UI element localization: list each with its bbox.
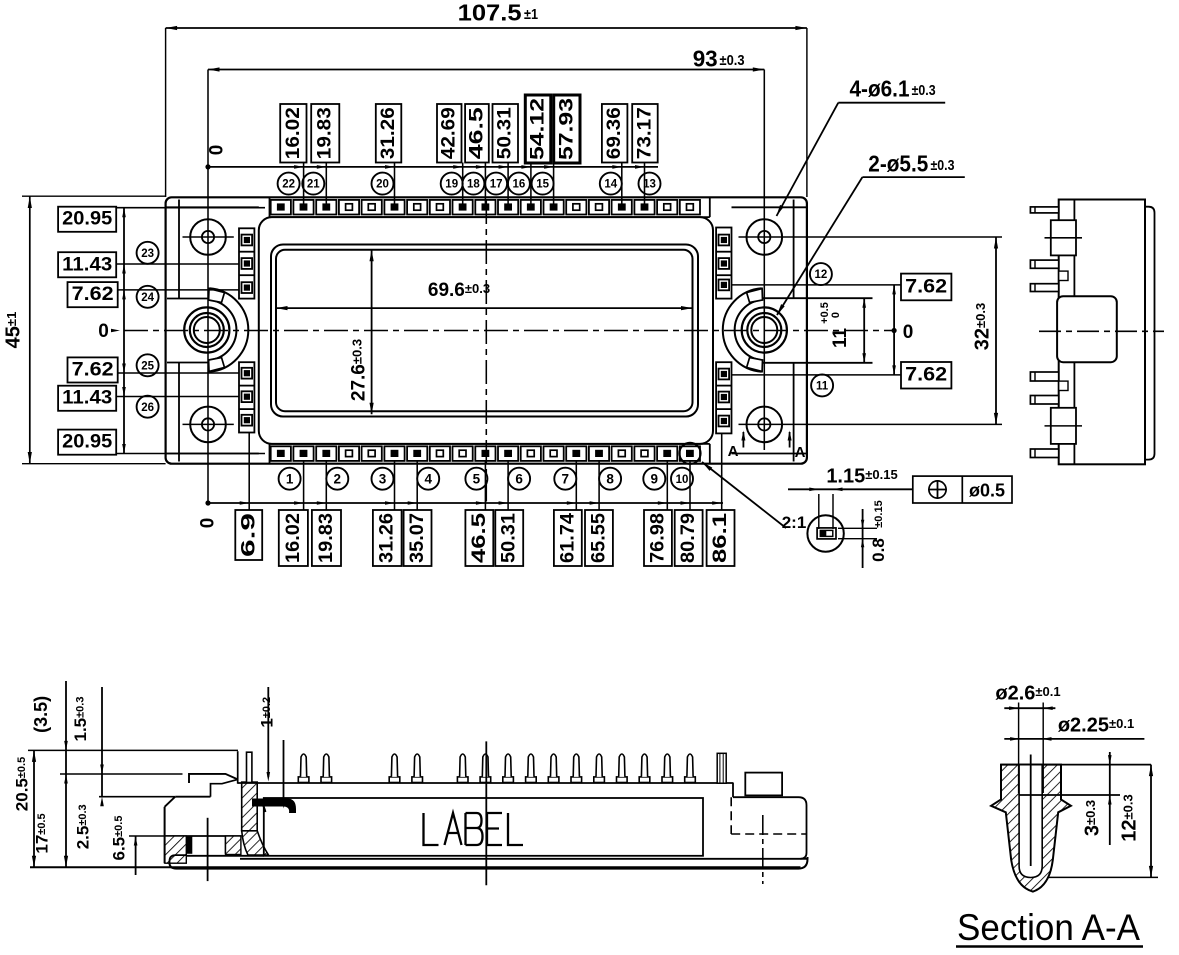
svg-text:4: 4 [424, 472, 432, 487]
svg-text:±0.3: ±0.3 [931, 157, 955, 174]
svg-text:±0.3: ±0.3 [912, 82, 936, 99]
svg-text:2: 2 [334, 472, 342, 487]
svg-text:3: 3 [379, 472, 387, 487]
svg-text:35.07: 35.07 [407, 513, 428, 563]
svg-text:7.62: 7.62 [72, 359, 114, 380]
svg-text:15: 15 [536, 179, 549, 191]
svg-text:21: 21 [307, 179, 320, 191]
svg-text:A: A [728, 443, 739, 460]
svg-text:17: 17 [490, 179, 503, 191]
svg-text:±0.15: ±0.15 [873, 500, 885, 527]
svg-text:11.43: 11.43 [62, 254, 112, 275]
svg-text:69.36: 69.36 [604, 107, 625, 159]
svg-text:65.55: 65.55 [589, 513, 610, 563]
svg-text:2:1: 2:1 [782, 513, 807, 532]
svg-text:23: 23 [141, 248, 154, 260]
svg-text:19.83: 19.83 [316, 513, 337, 563]
svg-text:20.95: 20.95 [62, 209, 112, 230]
svg-text:16.02: 16.02 [283, 107, 304, 159]
svg-text:16.02: 16.02 [283, 513, 304, 563]
svg-text:5: 5 [473, 472, 481, 487]
svg-text:6.9: 6.9 [238, 513, 259, 557]
svg-text:107.5: 107.5 [458, 0, 522, 26]
svg-text:24: 24 [141, 292, 154, 304]
svg-text:46.5: 46.5 [467, 107, 488, 160]
svg-text:57.93: 57.93 [556, 98, 577, 160]
svg-text:7.62: 7.62 [72, 284, 114, 305]
svg-text:22: 22 [282, 179, 295, 191]
svg-text:±0.3: ±0.3 [720, 52, 745, 69]
svg-text:2-ø5.5: 2-ø5.5 [868, 151, 928, 177]
svg-text:76.98: 76.98 [648, 513, 669, 563]
svg-text:19: 19 [445, 179, 458, 191]
svg-text:26: 26 [141, 402, 154, 414]
svg-text:0: 0 [207, 145, 228, 156]
svg-text:20.95: 20.95 [62, 432, 112, 453]
svg-text:7.62: 7.62 [905, 365, 947, 386]
svg-text:7: 7 [562, 472, 570, 487]
svg-text:Section A-A: Section A-A [957, 907, 1140, 948]
svg-text:80.79: 80.79 [678, 513, 699, 563]
svg-text:11: 11 [830, 328, 851, 349]
svg-text:31.26: 31.26 [377, 513, 398, 563]
svg-text:13: 13 [643, 179, 656, 191]
svg-text:0: 0 [830, 312, 842, 318]
svg-text:1: 1 [286, 472, 294, 487]
svg-text:42.69: 42.69 [439, 107, 460, 159]
svg-text:61.74: 61.74 [557, 513, 578, 563]
svg-text:7.62: 7.62 [905, 277, 947, 298]
svg-text:25: 25 [141, 360, 154, 372]
svg-text:93: 93 [693, 46, 718, 72]
svg-text:10: 10 [676, 474, 689, 486]
svg-text:ø0.5: ø0.5 [969, 481, 1005, 501]
svg-text:0: 0 [98, 321, 109, 342]
svg-text:12: 12 [815, 269, 828, 281]
svg-text:50.31: 50.31 [499, 513, 520, 563]
svg-text:8: 8 [606, 472, 614, 487]
svg-text:54.12: 54.12 [528, 98, 549, 160]
svg-text:50.31: 50.31 [495, 107, 516, 159]
svg-text:A: A [795, 444, 806, 461]
svg-text:73.17: 73.17 [635, 107, 656, 159]
svg-text:11.43: 11.43 [62, 388, 112, 409]
svg-text:86.1: 86.1 [710, 512, 731, 563]
svg-text:±1: ±1 [524, 6, 538, 23]
svg-text:11: 11 [816, 381, 829, 393]
svg-text:0: 0 [903, 322, 914, 343]
svg-text:6: 6 [515, 472, 523, 487]
svg-text:14: 14 [604, 179, 617, 191]
svg-text:9: 9 [651, 472, 659, 487]
svg-text:46.5: 46.5 [469, 512, 490, 563]
svg-text:4-ø6.1: 4-ø6.1 [850, 76, 910, 102]
svg-text:0.8: 0.8 [869, 538, 888, 562]
svg-text:16: 16 [513, 179, 526, 191]
svg-text:19.83: 19.83 [315, 107, 336, 159]
svg-text:31.26: 31.26 [378, 107, 399, 159]
svg-text:20: 20 [376, 179, 389, 191]
svg-text:18: 18 [467, 179, 480, 191]
svg-text:(3.5): (3.5) [31, 696, 51, 733]
svg-text:0: 0 [198, 518, 219, 529]
